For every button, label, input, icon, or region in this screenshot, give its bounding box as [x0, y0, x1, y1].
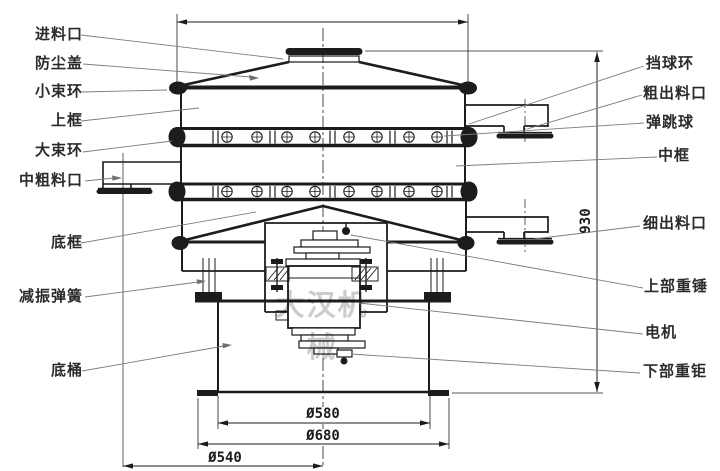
- label-motor: 电机: [645, 325, 677, 340]
- label-upper-weight: 上部重锤: [644, 279, 708, 294]
- dimension-text-680: Ø680: [301, 429, 345, 443]
- dimension-text-580: Ø580: [301, 407, 345, 421]
- label-coarse-outlet: 粗出料口: [643, 86, 707, 101]
- label-lower-weight: 下部重钜: [643, 364, 707, 379]
- upper-weight-shape: [286, 222, 370, 266]
- label-middle-coarse-outlet: 中粗料口: [19, 173, 83, 188]
- label-middle-frame: 中框: [658, 148, 690, 163]
- bouncing-balls-row-2: [222, 186, 442, 196]
- label-large-clamp-ring: 大束环: [35, 143, 83, 158]
- dimension-text-540: Ø540: [203, 451, 247, 465]
- dimension-930: [365, 51, 603, 393]
- leader-arrowheads: [112, 75, 259, 348]
- vibrating-screen-technical-drawing: 进料口 防尘盖 小束环 上框 大束环 中粗料口 底框 减振弹簧 底桶 挡球环 粗…: [0, 0, 720, 471]
- motor-shape: [266, 258, 378, 328]
- label-fine-outlet: 细出料口: [643, 216, 707, 231]
- label-bouncing-ball: 弹跳球: [646, 115, 694, 130]
- damping-spring-left: [195, 258, 222, 300]
- middle-coarse-outlet-shape: [98, 162, 181, 192]
- label-upper-frame: 上框: [51, 113, 83, 128]
- bouncing-balls-row-1: [222, 132, 442, 142]
- label-feed-inlet: 进料口: [35, 27, 83, 42]
- label-damping-spring: 减振弹簧: [19, 289, 83, 304]
- machine-section-view: [0, 0, 720, 471]
- lower-weight-shape: [292, 328, 365, 365]
- dimension-text-930: 930: [579, 199, 593, 243]
- damping-spring-right: [424, 258, 451, 300]
- label-small-clamp-ring: 小束环: [35, 84, 83, 99]
- label-bottom-frame: 底框: [51, 235, 83, 250]
- feed-inlet-shape: [289, 52, 359, 63]
- label-dust-cover: 防尘盖: [35, 56, 83, 71]
- label-base-barrel: 底桶: [51, 363, 83, 378]
- label-ball-stop-ring: 挡球环: [646, 56, 694, 71]
